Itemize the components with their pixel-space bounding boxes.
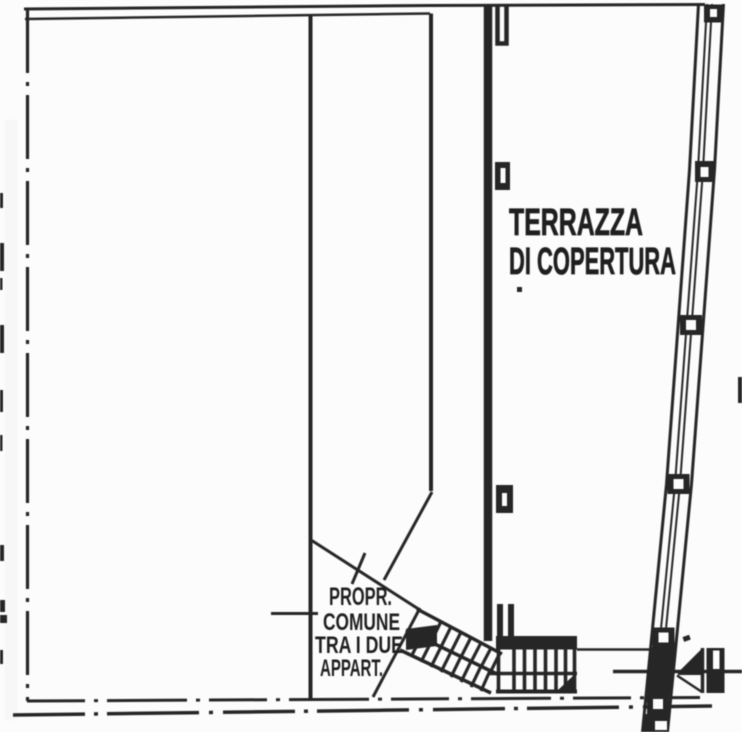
svg-text:PROPR.: PROPR.: [329, 583, 392, 611]
svg-text:APPART.: APPART.: [320, 655, 383, 682]
svg-text:DI COPERTURA: DI COPERTURA: [509, 241, 676, 283]
svg-text:TERRAZZA: TERRAZZA: [509, 202, 643, 244]
